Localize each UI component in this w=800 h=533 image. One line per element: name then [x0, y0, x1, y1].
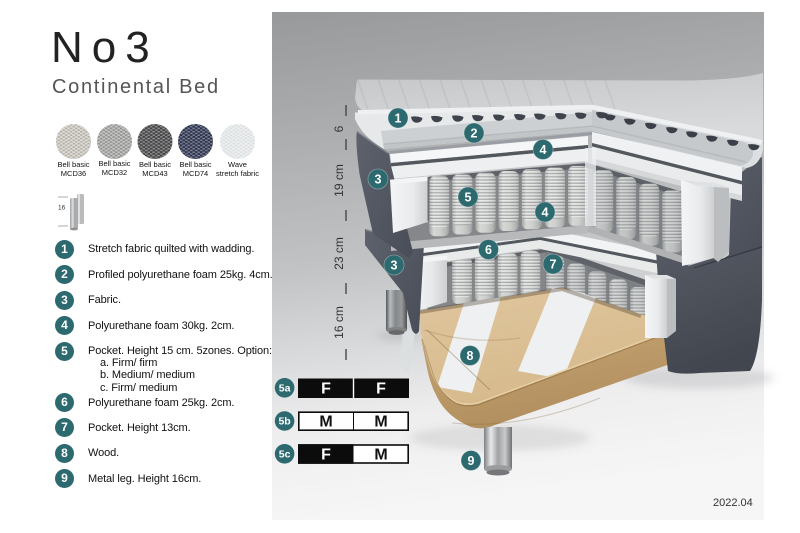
svg-text:5: 5 [465, 191, 472, 205]
svg-text:2022.04: 2022.04 [713, 497, 753, 509]
svg-text:7: 7 [550, 258, 557, 272]
svg-text:F: F [321, 446, 331, 463]
svg-text:8: 8 [467, 349, 474, 363]
svg-text:5a: 5a [279, 382, 291, 394]
svg-text:23 cm: 23 cm [332, 237, 346, 270]
svg-text:M: M [319, 414, 332, 431]
svg-text:6: 6 [485, 243, 492, 257]
svg-text:16 cm: 16 cm [332, 306, 346, 339]
svg-text:5b: 5b [278, 416, 290, 428]
svg-text:3: 3 [391, 259, 398, 273]
svg-text:M: M [374, 446, 387, 463]
svg-text:F: F [321, 381, 331, 398]
svg-text:M: M [374, 414, 387, 431]
svg-text:2: 2 [471, 127, 478, 141]
svg-text:3: 3 [375, 173, 382, 187]
svg-text:9: 9 [468, 454, 475, 468]
svg-text:6: 6 [332, 125, 346, 132]
svg-text:1: 1 [395, 112, 402, 126]
svg-text:F: F [376, 381, 386, 398]
svg-text:5c: 5c [279, 448, 291, 460]
svg-text:4: 4 [542, 206, 549, 220]
svg-text:19 cm: 19 cm [332, 164, 346, 197]
svg-text:4: 4 [540, 143, 547, 157]
